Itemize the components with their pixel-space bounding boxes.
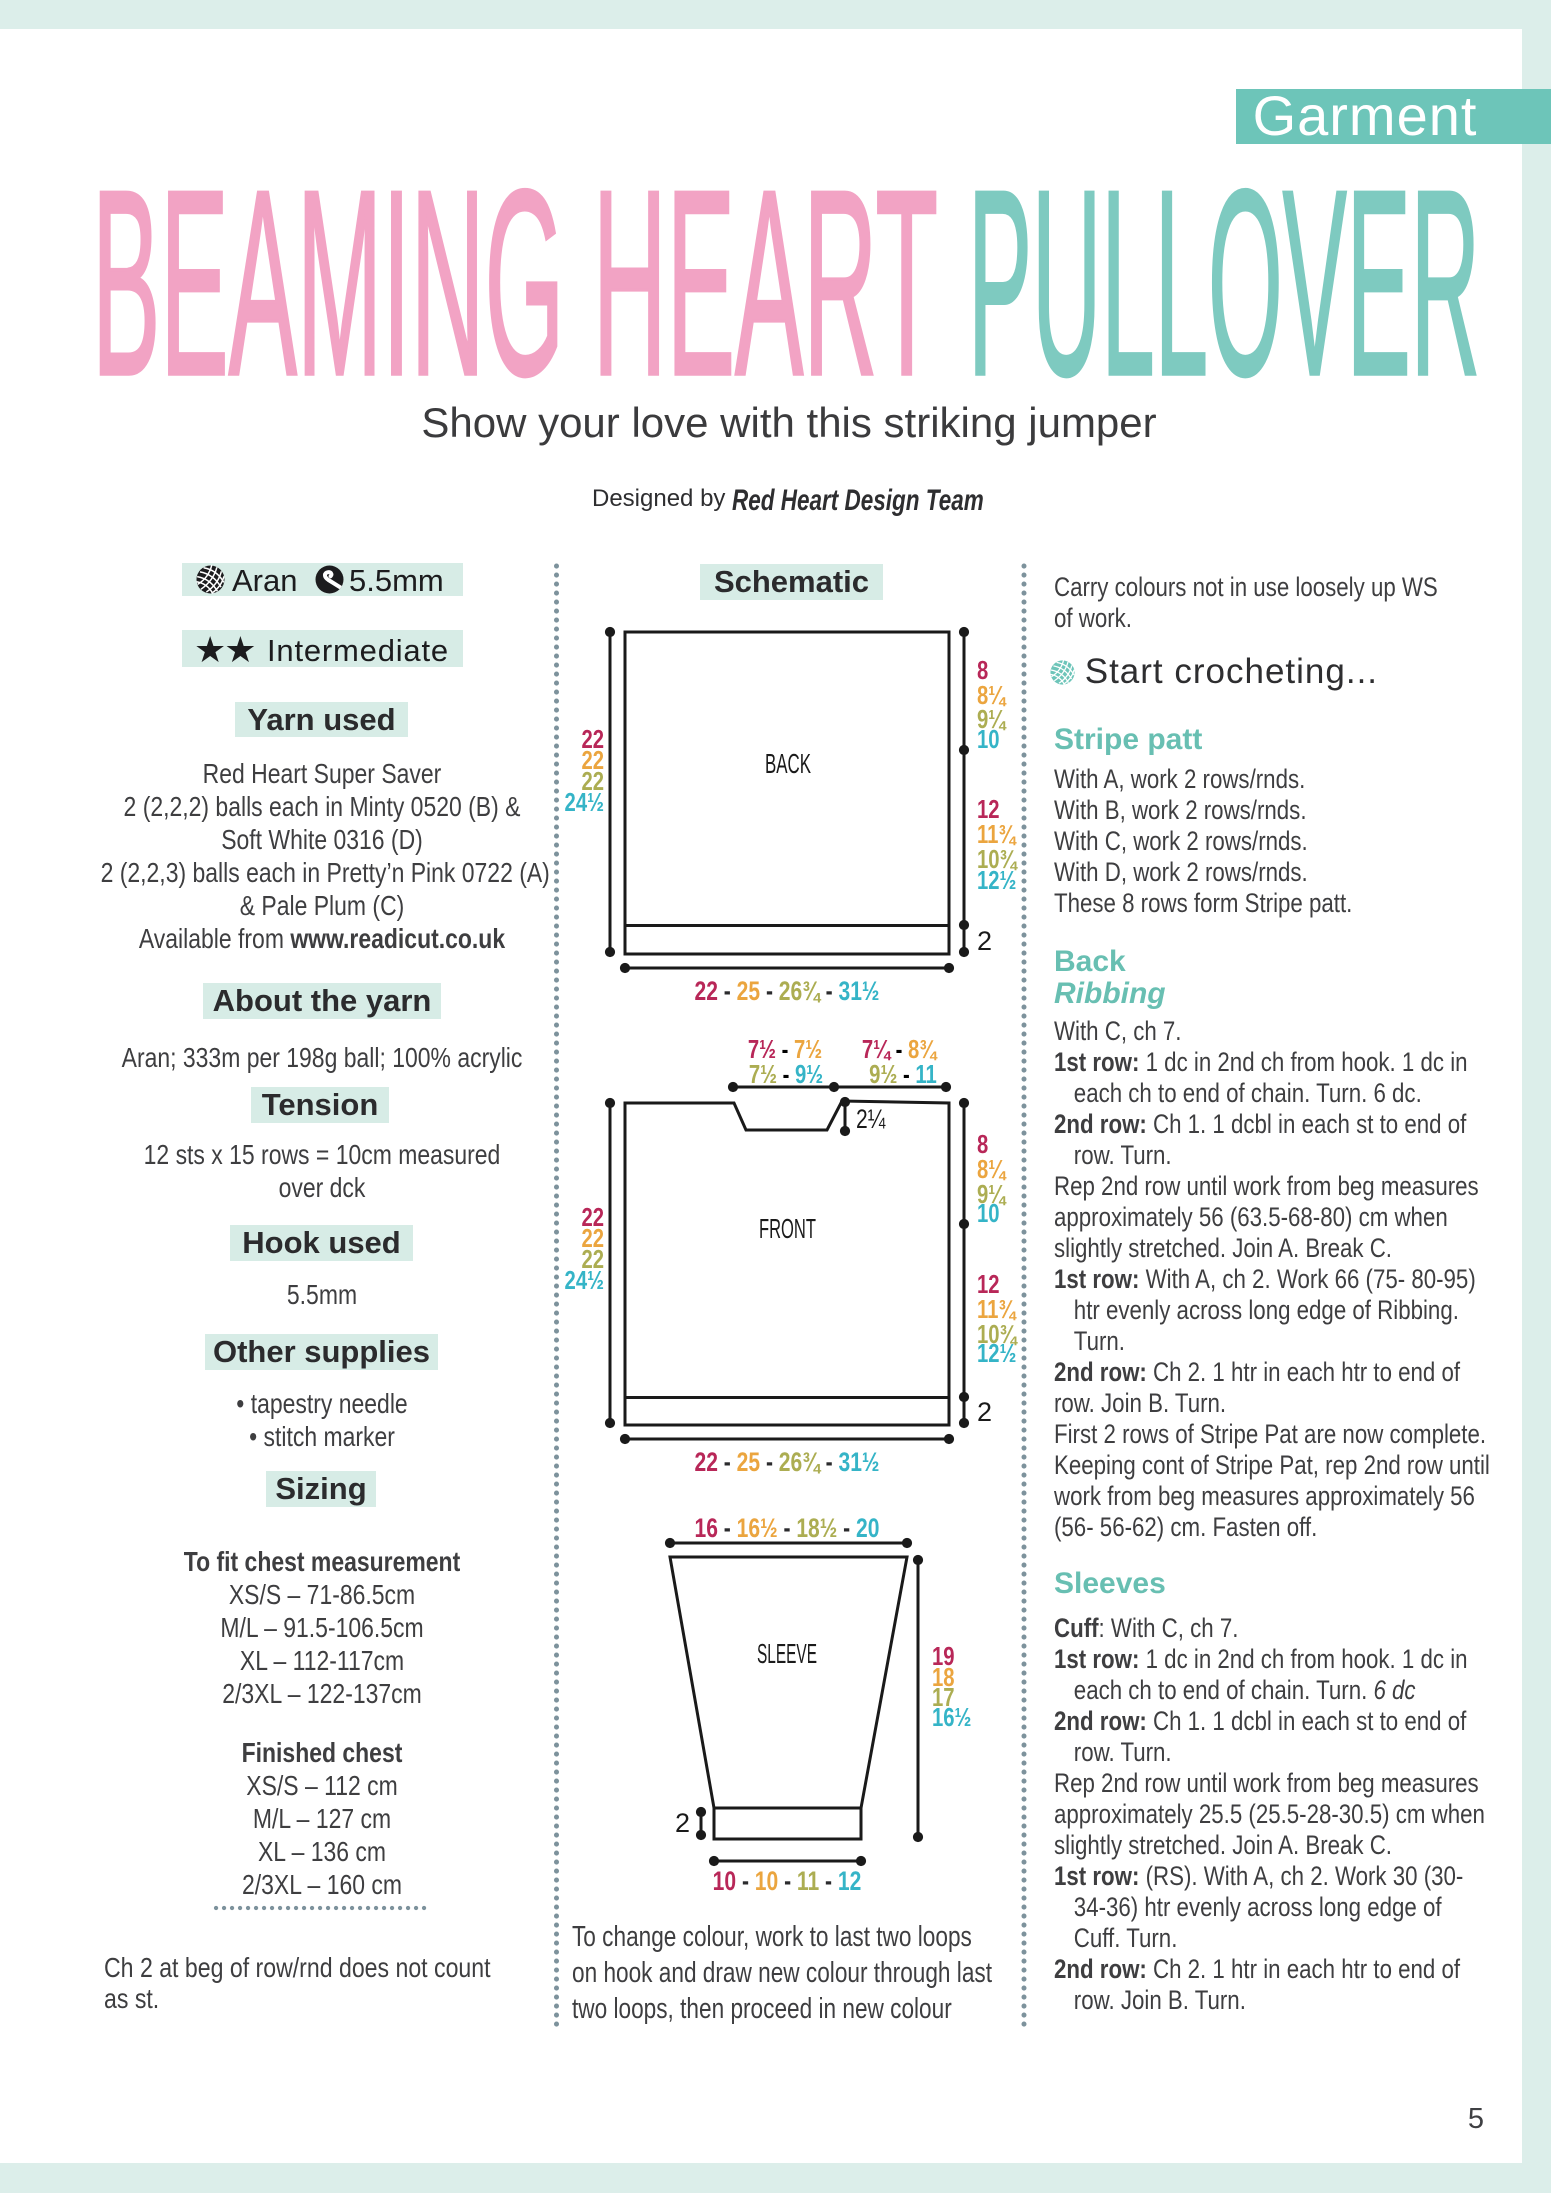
svg-text:22 - 25 - 26¾ - 31½: 22 - 25 - 26¾ - 31½ — [695, 1448, 880, 1478]
svg-text:16½: 16½ — [932, 1703, 971, 1732]
svg-text:SLEEVE: SLEEVE — [757, 1638, 817, 1669]
svg-text:24½: 24½ — [565, 1266, 604, 1295]
svg-text:12½: 12½ — [977, 866, 1016, 895]
svg-text:10 - 10 - 11 - 12: 10 - 10 - 11 - 12 — [713, 1867, 862, 1897]
svg-text:2: 2 — [675, 1808, 690, 1838]
svg-text:2: 2 — [977, 1397, 992, 1427]
svg-text:BACK: BACK — [765, 748, 811, 779]
svg-text:24½: 24½ — [565, 788, 604, 817]
svg-text:10: 10 — [977, 725, 1000, 754]
svg-text:22 - 25 - 26¾ - 31½: 22 - 25 - 26¾ - 31½ — [695, 977, 880, 1007]
svg-text:2: 2 — [977, 926, 992, 956]
svg-text:10: 10 — [977, 1199, 1000, 1228]
svg-text:FRONT: FRONT — [759, 1213, 816, 1244]
svg-text:16 - 16½ - 18½ - 20: 16 - 16½ - 18½ - 20 — [695, 1514, 880, 1544]
svg-text:12½: 12½ — [977, 1339, 1016, 1368]
svg-text:9½ - 11: 9½ - 11 — [869, 1060, 937, 1089]
svg-text:7½ - 9½: 7½ - 9½ — [749, 1060, 823, 1089]
svg-text:2¼: 2¼ — [856, 1105, 886, 1135]
